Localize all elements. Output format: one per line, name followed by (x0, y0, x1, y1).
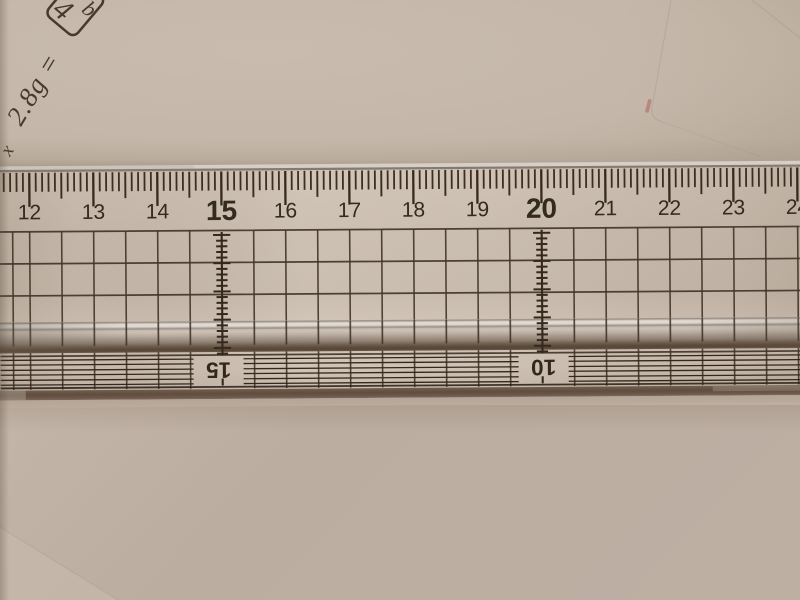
svg-text:22: 22 (658, 197, 682, 220)
svg-text:21: 21 (594, 197, 618, 220)
svg-text:13: 13 (82, 201, 106, 224)
svg-text:20: 20 (526, 193, 557, 224)
svg-text:17: 17 (338, 199, 362, 222)
svg-text:15: 15 (206, 357, 231, 382)
svg-text:16: 16 (274, 199, 298, 222)
svg-text:19: 19 (466, 198, 490, 221)
svg-text:18: 18 (402, 199, 426, 222)
svg-text:12: 12 (18, 201, 42, 224)
svg-text:24: 24 (786, 196, 800, 219)
svg-text:14: 14 (146, 200, 170, 223)
svg-text:15: 15 (206, 195, 237, 226)
svg-text:23: 23 (722, 196, 746, 219)
svg-text:10: 10 (531, 355, 556, 380)
